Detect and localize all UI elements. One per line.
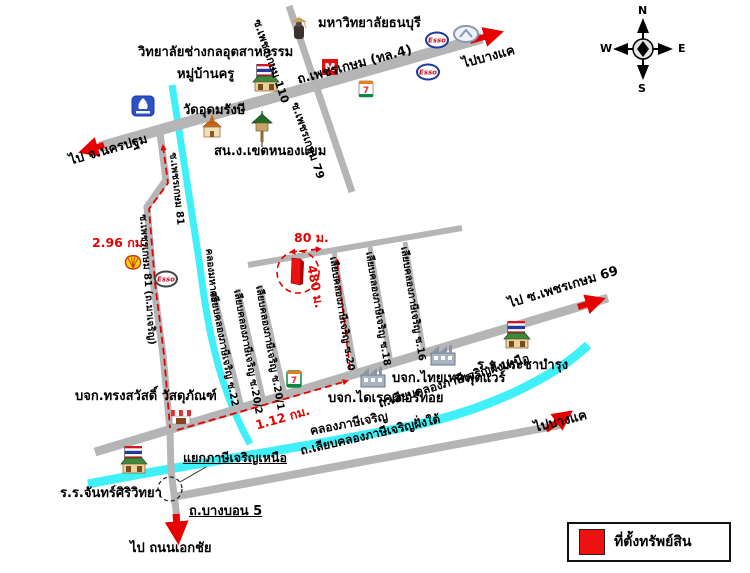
destination-soi-road [248, 228, 462, 265]
label-wat-udom-rangsi: วัดอุดมรังษี [183, 104, 245, 118]
esso-station-icon: Esso [417, 65, 439, 80]
legend-box: ที่ตั้งทรัพย์สิน [567, 522, 731, 562]
ptt-station-icon [132, 96, 154, 116]
label-junction: แยกภาษีเจริญเหนือ [183, 451, 287, 465]
property-marker [291, 258, 304, 285]
legend-property-marker-swatch [579, 529, 605, 555]
chansiri-school-icon [121, 446, 147, 473]
compass-north-label: N [638, 4, 647, 17]
label-songsawat-materials: บจก.ทรงสวัสดิ์ วัสดุภัณฑ์ [75, 390, 217, 404]
label-bang-bon-5: ถ.บางบอน 5 [189, 505, 262, 519]
svg-text:Esso: Esso [157, 276, 175, 284]
compass-south-label: S [638, 82, 646, 95]
esso-station-icon: Esso [155, 272, 177, 287]
svg-text:7: 7 [291, 376, 297, 386]
label-prachabamrung-school: ร.ร.ประชาบำรุง [477, 359, 568, 373]
label-thai-tech-footwear: บจก.ไทยเทคฟุตแวร์ [392, 372, 505, 386]
district-office-pavilion-icon [252, 111, 272, 147]
label-chansiri-school: ร.ร.จันทร์ศิริวิทยา [60, 487, 162, 501]
label-district-office: สน.ง.เขตหนองแขม [214, 145, 326, 159]
seven-eleven-icon: 7 [287, 371, 301, 387]
svg-text:Esso: Esso [419, 69, 437, 77]
compass-east-label: E [678, 42, 686, 55]
label-director-toy: บจก.ไดเรคเตอร์ทอย [328, 392, 443, 406]
label-mu-ban-khru: หมู่บ้านครู [177, 68, 234, 82]
label-thonburi-university: มหาวิทยาลัยธนบุรี [318, 17, 421, 31]
svg-text:7: 7 [363, 86, 369, 96]
property-location-map: Esso Esso Esso M 7 7 [0, 0, 750, 573]
legend-property-label: ที่ตั้งทรัพย์สิน [614, 531, 691, 553]
seven-eleven-icon: 7 [359, 81, 373, 97]
svg-text:Esso: Esso [428, 37, 446, 45]
arrow-to-ekkachai [176, 514, 178, 538]
compass-west-label: W [600, 42, 612, 55]
label-to-ekkachai: ไป ถนนเอกชัย [130, 542, 212, 556]
mazda-dealer-icon [454, 26, 478, 42]
esso-station-icon: Esso [426, 33, 448, 48]
songsawat-shop-icon [171, 410, 191, 424]
compass-rose [613, 18, 673, 80]
label-distance-leg4: 80 ม. [294, 231, 329, 245]
shell-station-icon [125, 256, 140, 269]
